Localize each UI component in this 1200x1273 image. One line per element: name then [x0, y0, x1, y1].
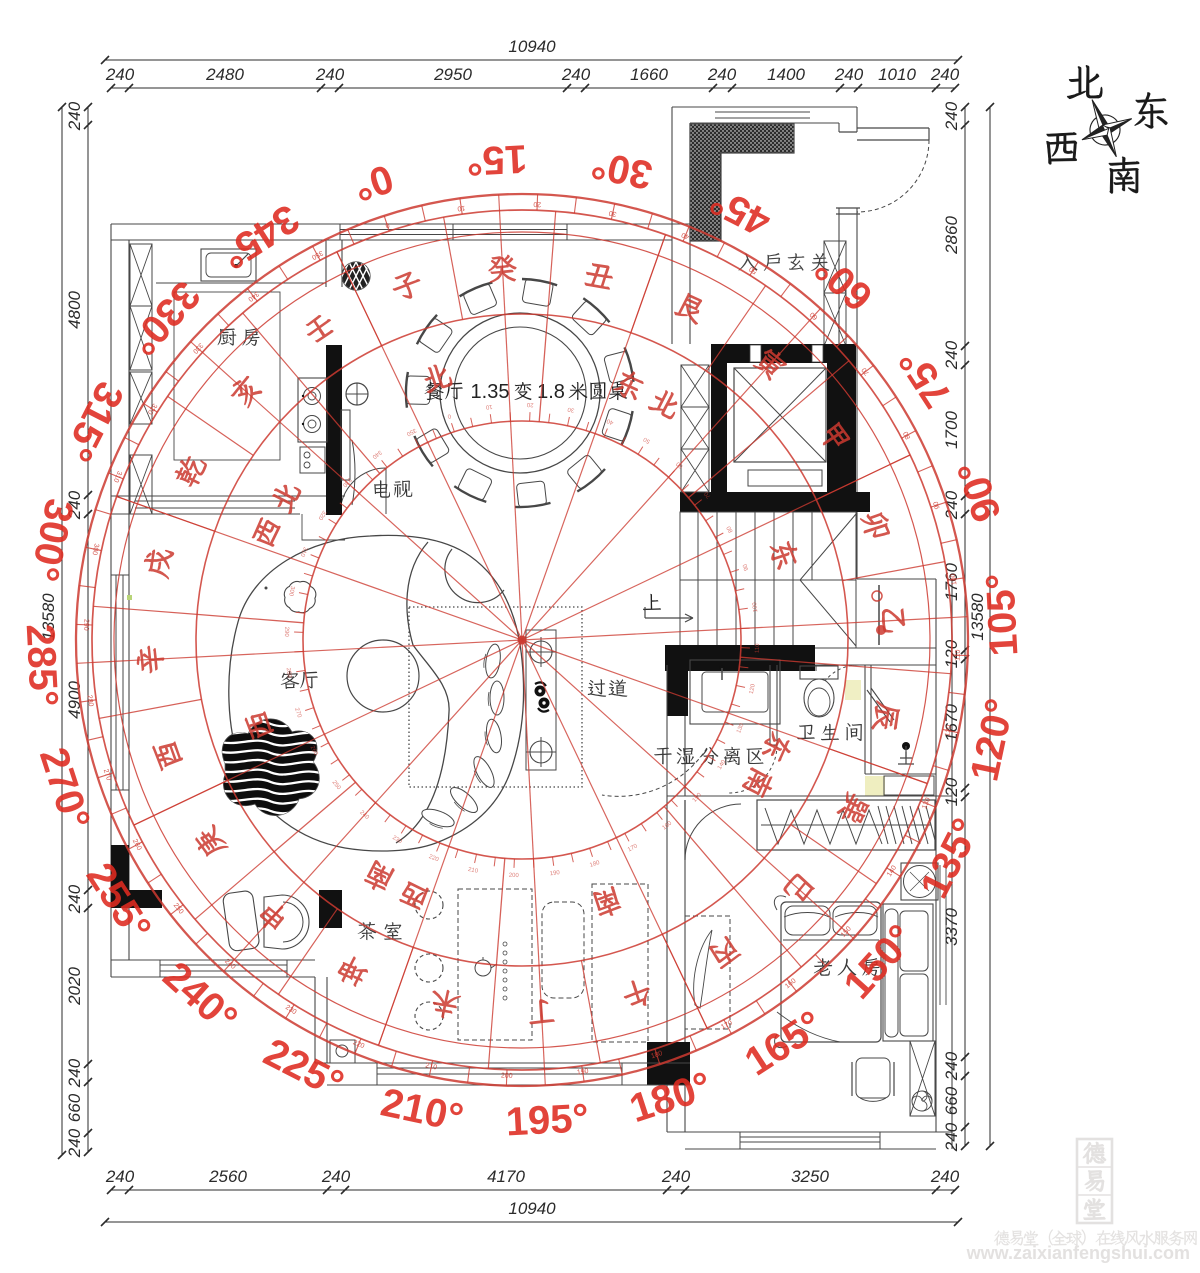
- svg-text:1.35: 1.35: [471, 381, 510, 403]
- svg-text:240: 240: [65, 1128, 84, 1158]
- svg-text:240: 240: [930, 1167, 960, 1186]
- svg-text:2860: 2860: [942, 216, 961, 255]
- svg-text:240: 240: [65, 101, 84, 131]
- svg-text:200: 200: [501, 1072, 513, 1079]
- svg-text:10: 10: [457, 204, 466, 212]
- svg-text:195°: 195°: [505, 1096, 590, 1144]
- svg-text:2950: 2950: [433, 65, 472, 84]
- svg-text:240: 240: [942, 1051, 961, 1081]
- svg-text:660: 660: [942, 1086, 961, 1115]
- svg-text:4170: 4170: [487, 1167, 525, 1186]
- svg-text:240: 240: [105, 65, 135, 84]
- svg-text:3250: 3250: [791, 1167, 829, 1186]
- svg-text:240: 240: [561, 65, 591, 84]
- svg-text:1700: 1700: [942, 411, 961, 449]
- svg-text:1400: 1400: [767, 65, 805, 84]
- svg-text:240: 240: [707, 65, 737, 84]
- svg-text:110: 110: [755, 643, 761, 653]
- svg-text:105°: 105°: [978, 572, 1026, 657]
- svg-text:200: 200: [509, 873, 520, 879]
- svg-text:2480: 2480: [205, 65, 244, 84]
- svg-text:2560: 2560: [208, 1167, 247, 1186]
- svg-text:290: 290: [283, 627, 289, 638]
- svg-text:240: 240: [315, 65, 345, 84]
- svg-text:1660: 1660: [630, 65, 668, 84]
- svg-text:240: 240: [942, 1122, 961, 1152]
- svg-text:www.zaixianfengshui.com: www.zaixianfengshui.com: [966, 1243, 1190, 1263]
- svg-text:660: 660: [65, 1093, 84, 1122]
- svg-text:2020: 2020: [65, 967, 84, 1006]
- svg-text:240: 240: [942, 340, 961, 370]
- svg-text:15°: 15°: [465, 136, 528, 183]
- svg-text:20: 20: [526, 401, 534, 407]
- svg-text:240: 240: [834, 65, 864, 84]
- svg-text:240: 240: [65, 884, 84, 914]
- svg-text:285°: 285°: [18, 623, 66, 708]
- svg-text:240: 240: [321, 1167, 351, 1186]
- svg-text:240: 240: [930, 65, 960, 84]
- svg-text:4800: 4800: [65, 291, 84, 329]
- svg-text:1010: 1010: [878, 65, 916, 84]
- svg-text:10940: 10940: [508, 37, 556, 56]
- svg-text:240: 240: [942, 101, 961, 131]
- svg-text:3370: 3370: [942, 908, 961, 946]
- svg-text:240: 240: [105, 1167, 135, 1186]
- svg-text:10940: 10940: [508, 1199, 556, 1218]
- svg-text:290: 290: [82, 619, 89, 631]
- svg-text:240: 240: [65, 1058, 84, 1088]
- svg-text:110: 110: [955, 649, 962, 661]
- svg-text:240: 240: [661, 1167, 691, 1186]
- svg-text:20: 20: [533, 200, 541, 207]
